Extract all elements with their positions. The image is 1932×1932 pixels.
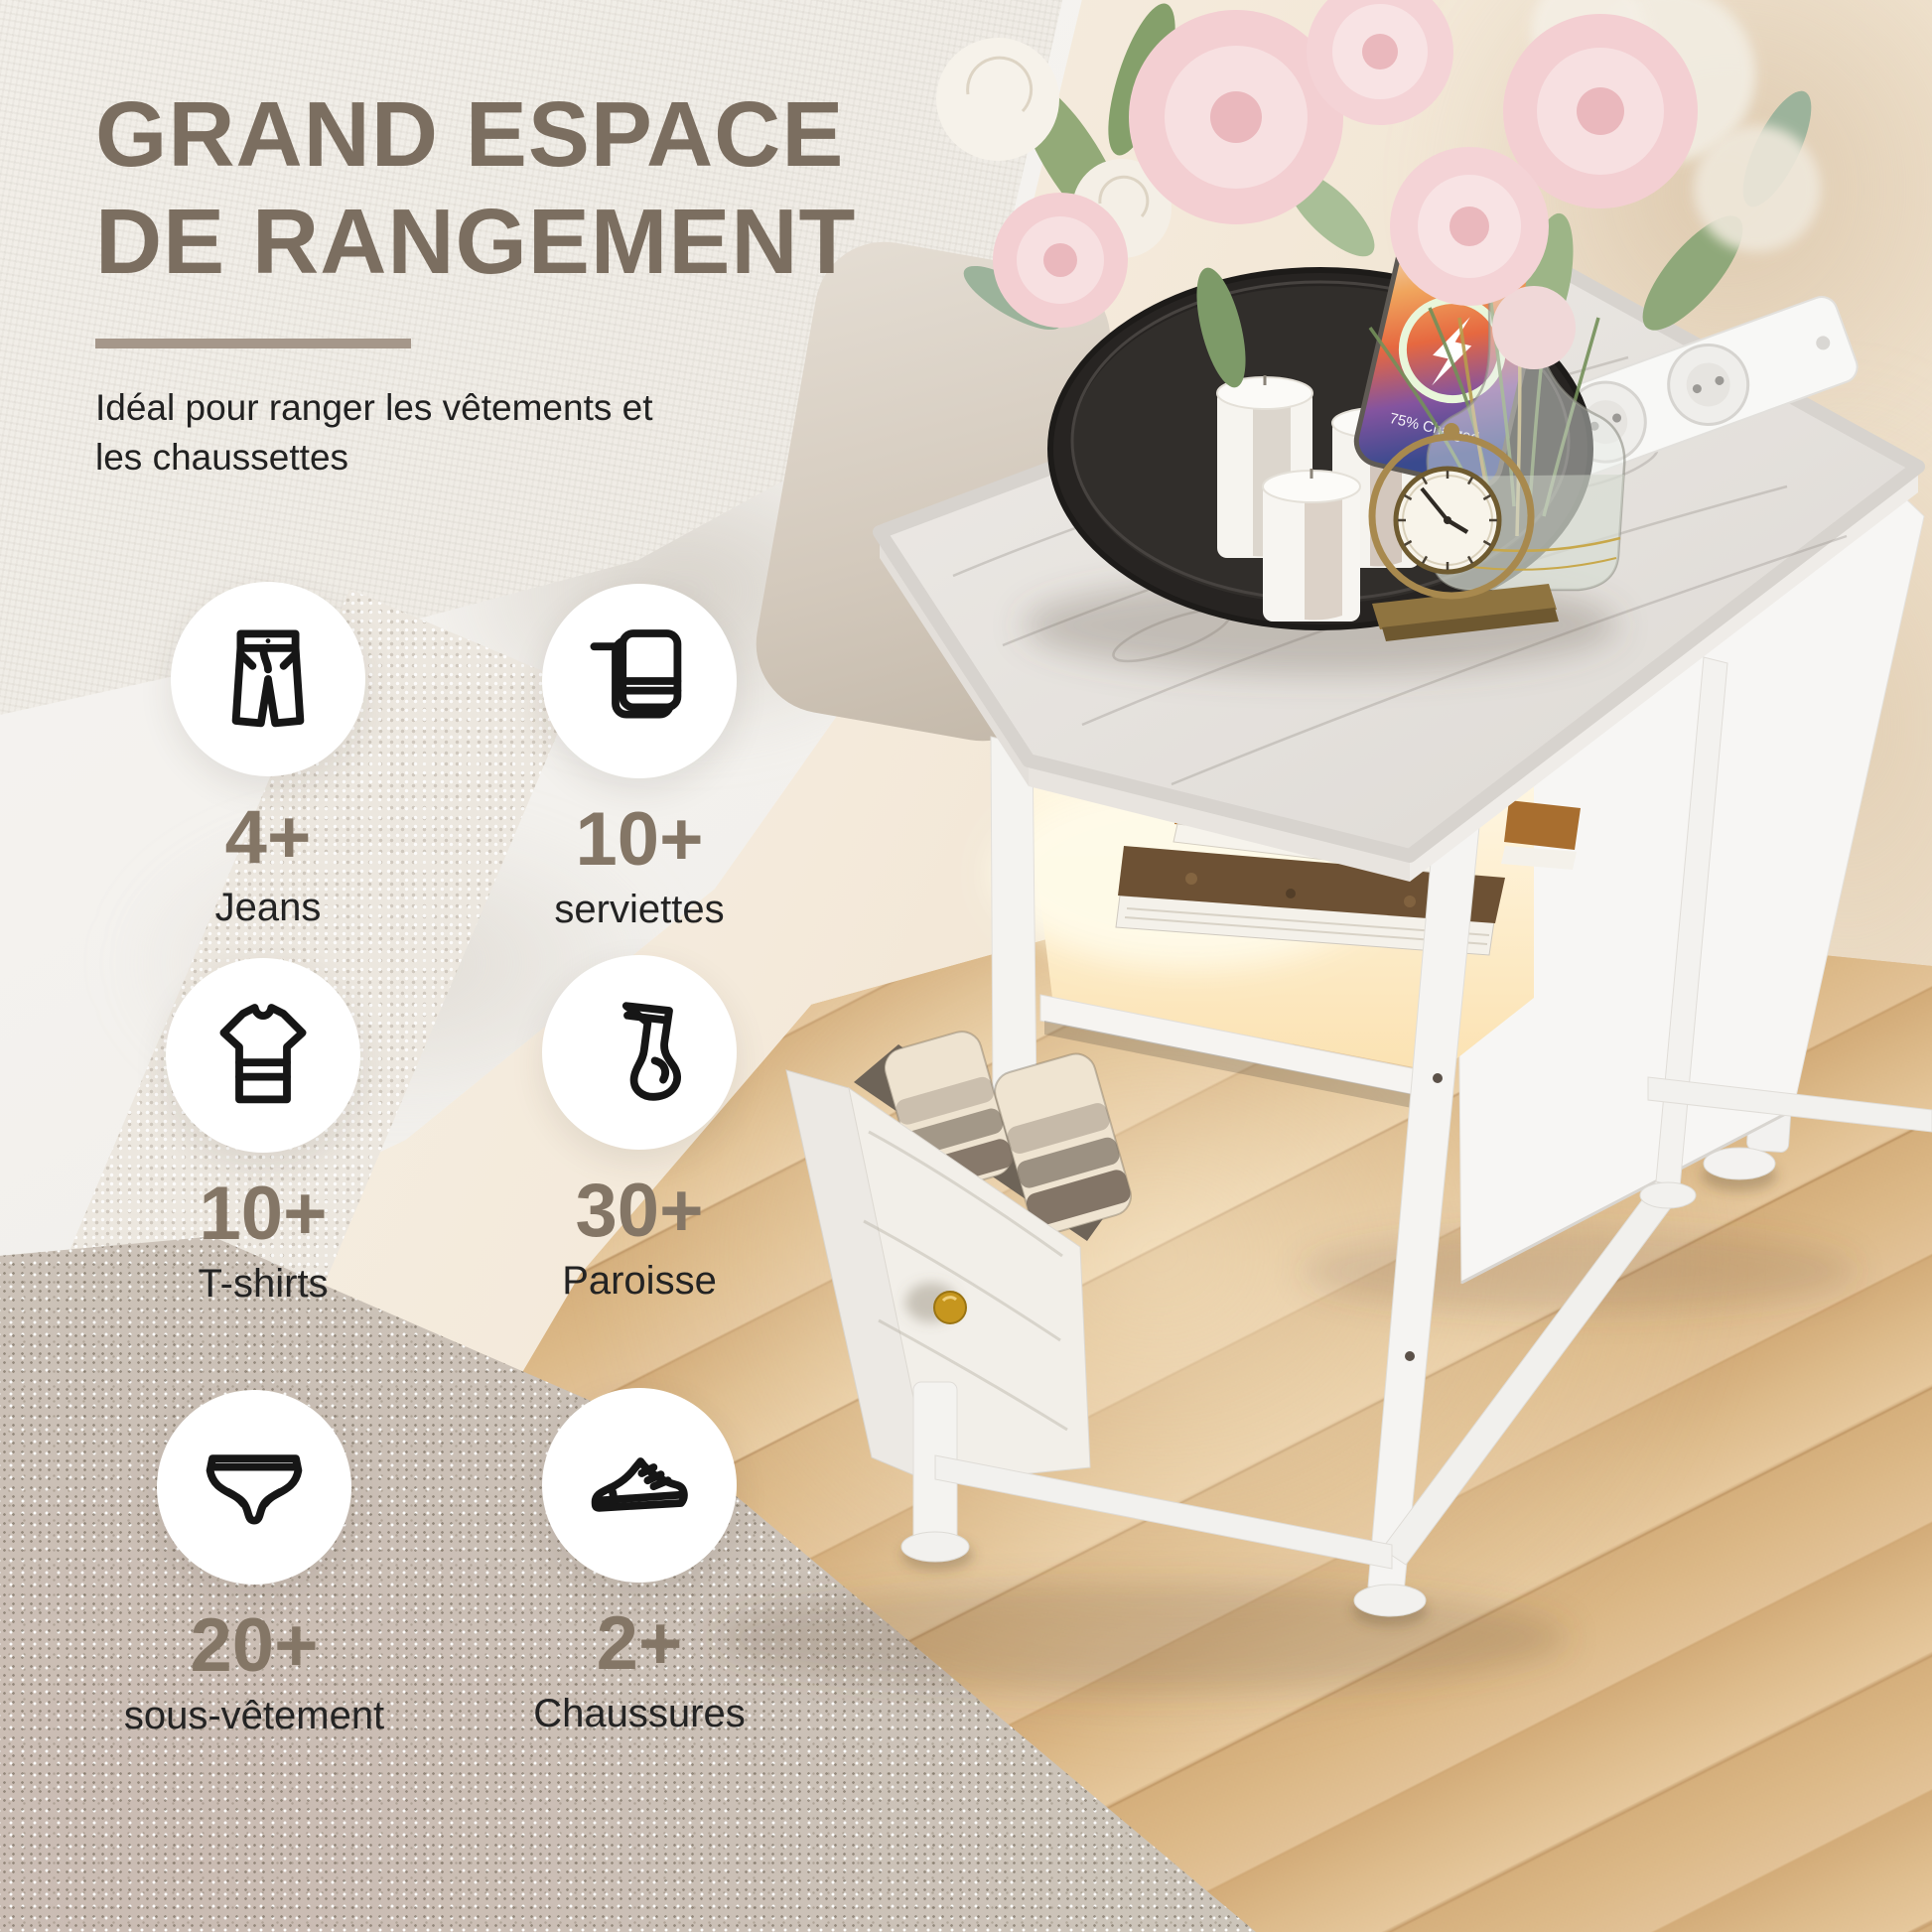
title-line-2: DE RANGEMENT (95, 189, 1148, 296)
feature-underwear: 20+ sous-vêtement (66, 1390, 443, 1737)
leg-foot (1640, 1182, 1696, 1208)
feature-label: T-shirts (198, 1262, 328, 1306)
feature-shoes: 2+ Chaussures (451, 1388, 828, 1735)
feature-jeans: 4+ Jeans (79, 582, 457, 929)
icon-circle (542, 1388, 737, 1583)
book-edge (1504, 800, 1581, 850)
leg-foot (1354, 1585, 1426, 1616)
storage-drawer (786, 1027, 1136, 1483)
feature-count: 30+ (576, 1173, 704, 1249)
icon-circle (166, 958, 360, 1153)
feature-socks: 30+ Paroisse (451, 955, 828, 1303)
bottom-rail (935, 1455, 1392, 1569)
feature-label: Paroisse (562, 1259, 717, 1303)
title-line-1: GRAND ESPACE (95, 81, 1148, 189)
tshirt-icon (204, 996, 323, 1115)
feature-count: 2+ (597, 1606, 683, 1682)
title-divider (95, 339, 411, 348)
page-title: GRAND ESPACE DE RANGEMENT (95, 81, 1148, 296)
feature-label: Chaussures (533, 1692, 745, 1735)
sock-icon (580, 993, 699, 1112)
feature-count: 4+ (225, 800, 312, 876)
icon-circle (542, 955, 737, 1150)
feature-count: 10+ (200, 1176, 328, 1252)
underwear-icon (195, 1428, 314, 1547)
sneaker-icon (580, 1426, 699, 1545)
product-infographic: 75% Charged (0, 0, 1932, 1932)
feature-label: sous-vêtement (124, 1694, 384, 1737)
feature-count: 10+ (576, 802, 704, 878)
jeans-icon (208, 620, 328, 739)
feature-count: 20+ (191, 1608, 319, 1684)
feature-label: Jeans (215, 886, 322, 929)
feature-tshirts: 10+ T-shirts (74, 958, 452, 1306)
towel-icon (580, 621, 699, 741)
icon-circle (157, 1390, 351, 1585)
icon-circle (542, 584, 737, 778)
left-upright (991, 737, 1036, 1100)
leg-foot (901, 1532, 969, 1562)
feature-towels: 10+ serviettes (451, 584, 828, 931)
icon-circle (171, 582, 365, 776)
subtitle-line-2: les chaussettes (95, 433, 810, 483)
unit-shadow (715, 1584, 1569, 1693)
subtitle: Idéal pour ranger les vêtements et les c… (95, 383, 810, 483)
feature-label: serviettes (554, 888, 724, 931)
candle (1263, 469, 1360, 621)
subtitle-line-1: Idéal pour ranger les vêtements et (95, 383, 810, 433)
